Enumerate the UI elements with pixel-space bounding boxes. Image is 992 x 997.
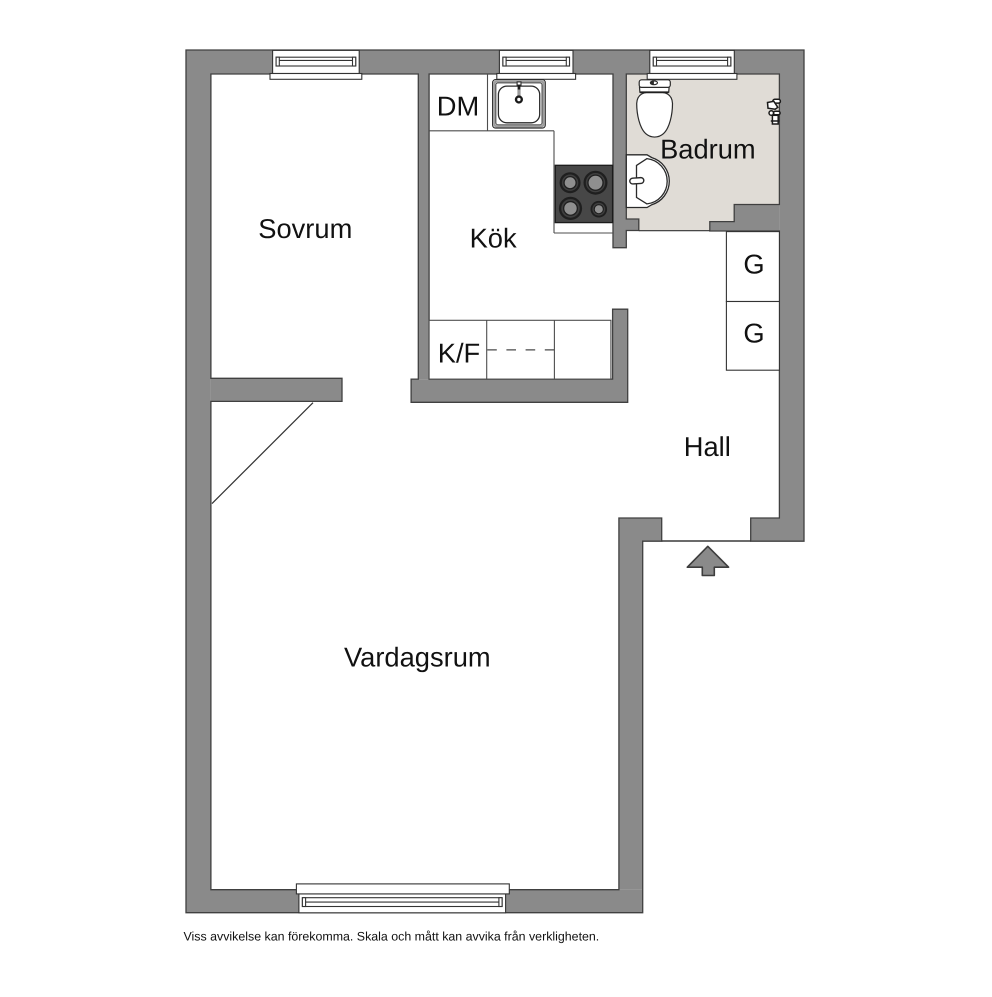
- svg-text:DM: DM: [437, 90, 479, 121]
- svg-text:K/F: K/F: [438, 338, 480, 369]
- svg-text:Hall: Hall: [684, 431, 731, 462]
- svg-text:Badrum: Badrum: [660, 134, 756, 165]
- svg-text:G: G: [743, 249, 764, 280]
- svg-text:Kök: Kök: [470, 223, 517, 254]
- svg-text:G: G: [743, 318, 764, 349]
- svg-text:Vardagsrum: Vardagsrum: [344, 642, 491, 673]
- svg-text:Sovrum: Sovrum: [258, 213, 352, 244]
- svg-text:Viss avvikelse kan förekomma.: Viss avvikelse kan förekomma. Skala och …: [184, 930, 600, 944]
